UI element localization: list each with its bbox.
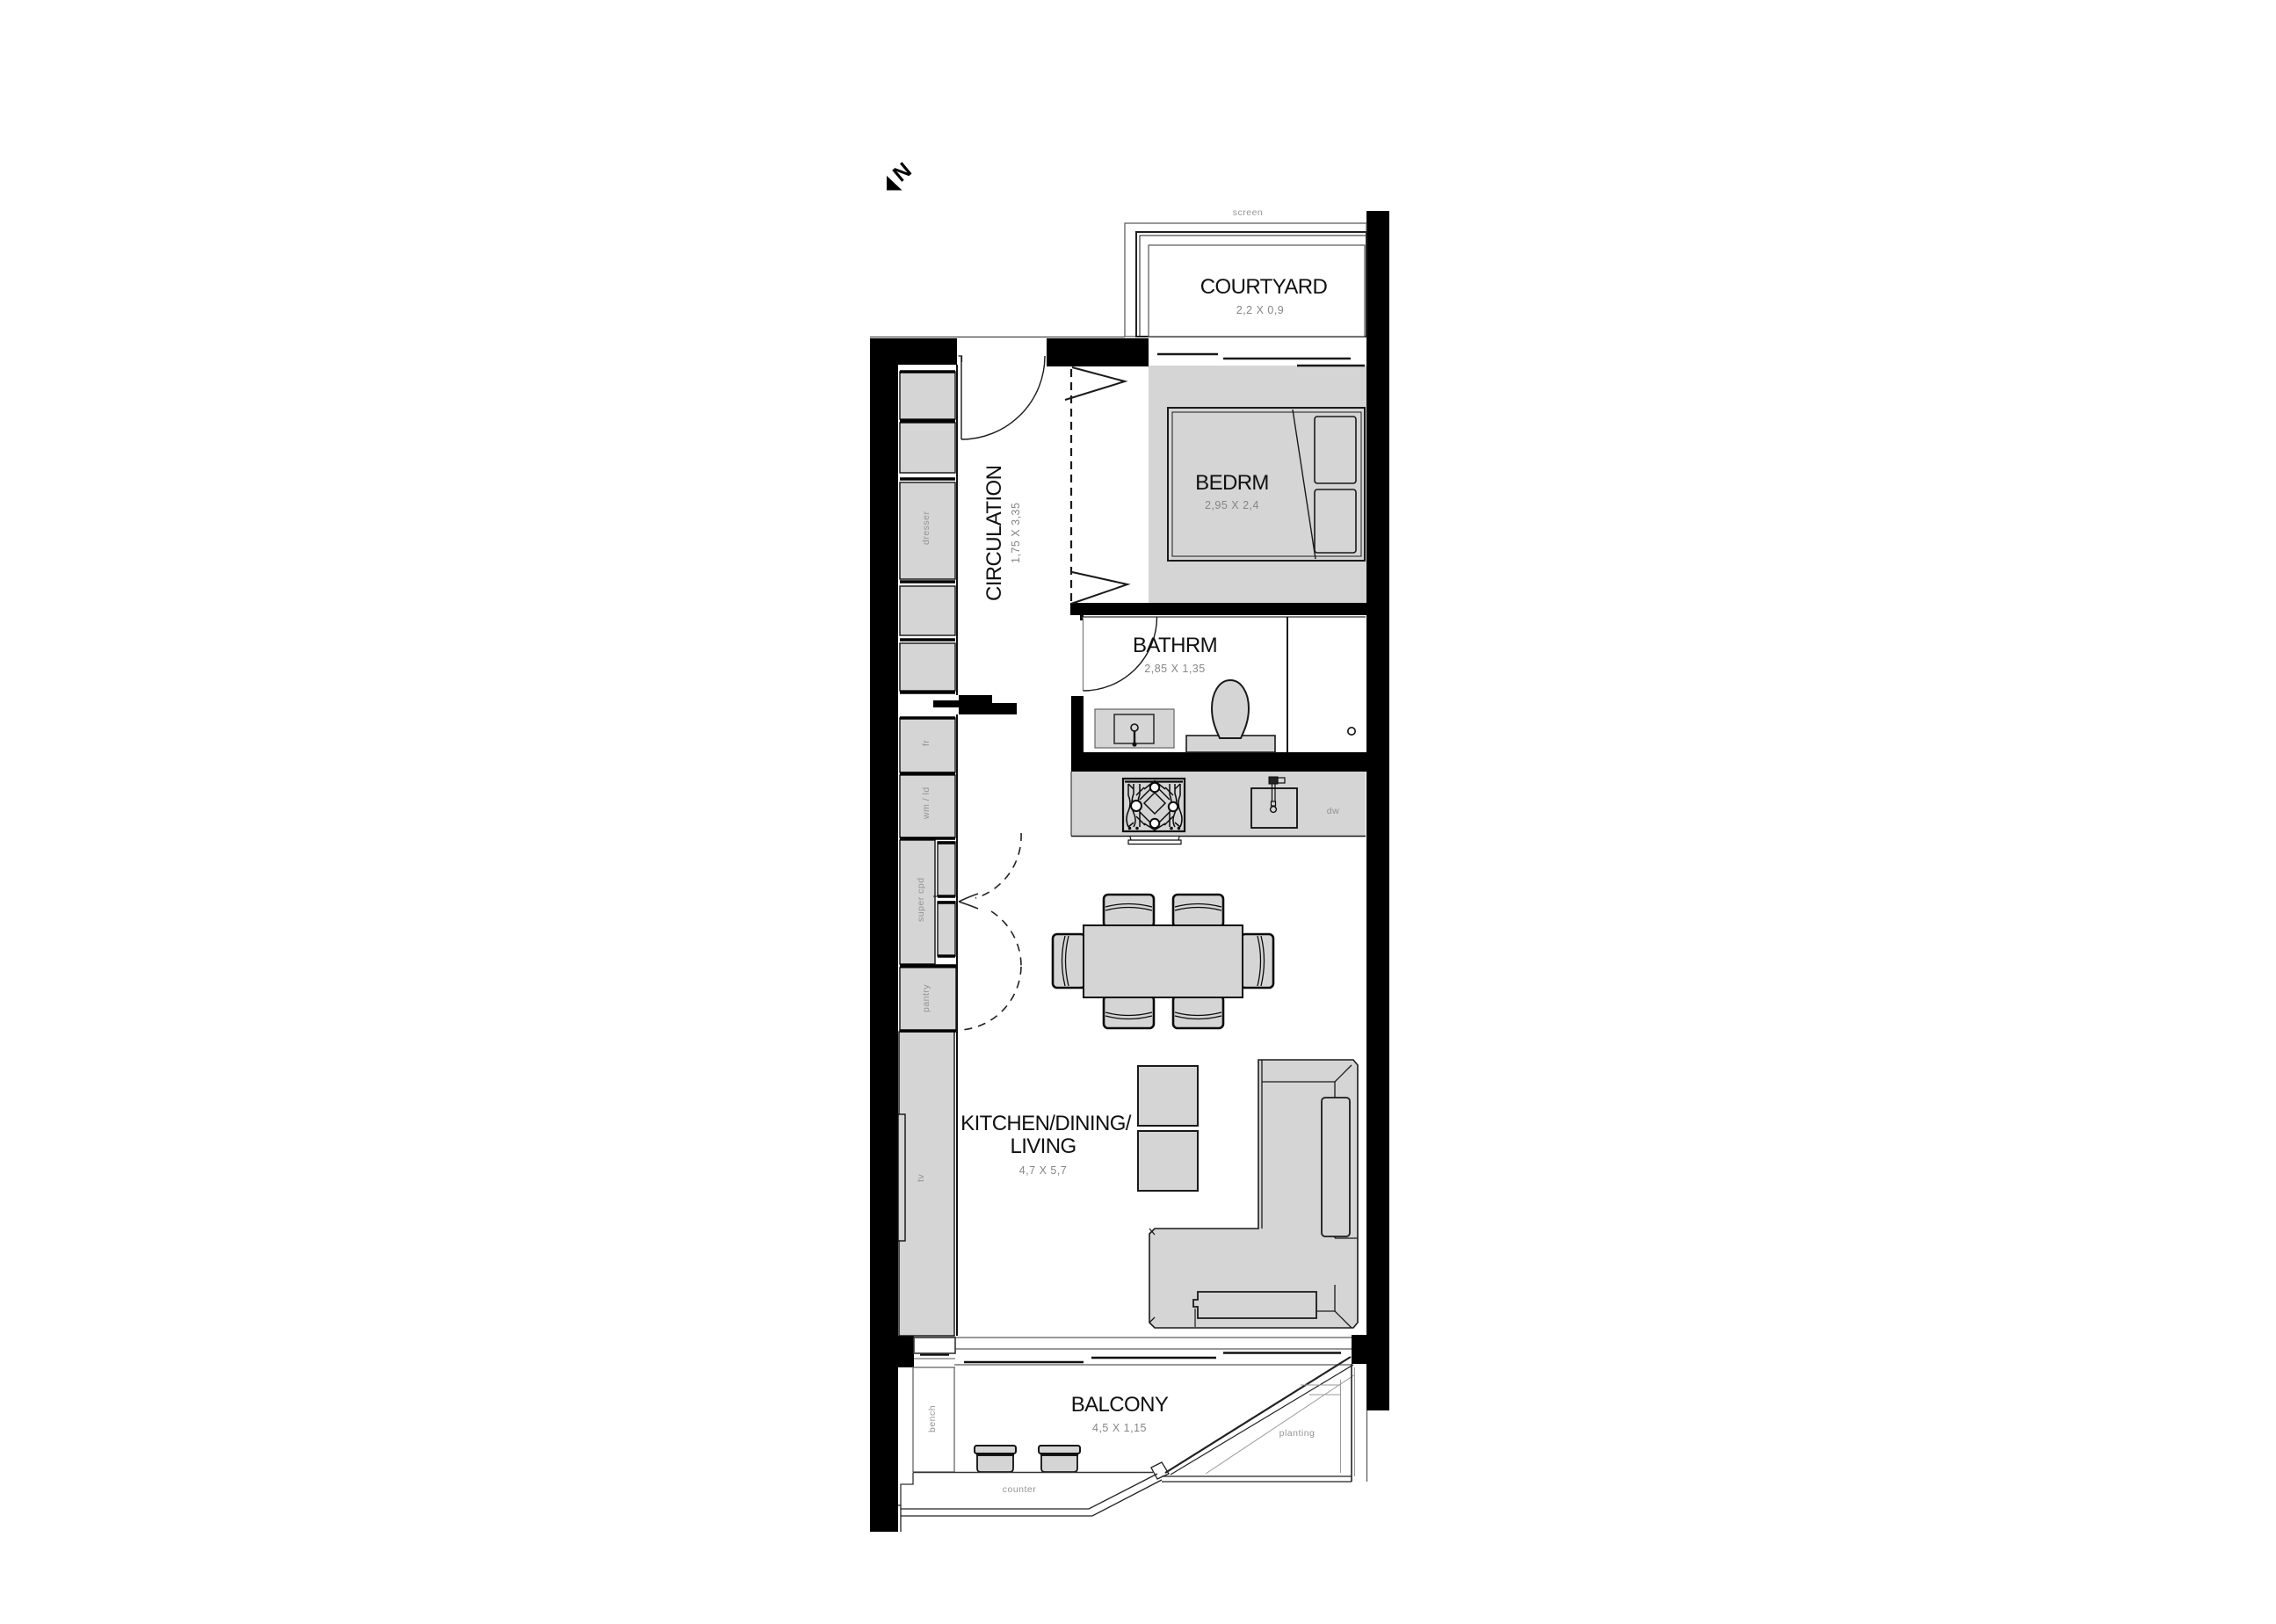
svg-text:COURTYARD: COURTYARD <box>1200 275 1328 299</box>
svg-text:2,95 X 2,4: 2,95 X 2,4 <box>1205 499 1259 511</box>
svg-text:tv: tv <box>916 1174 926 1182</box>
svg-text:BALCONY: BALCONY <box>1071 1393 1169 1417</box>
svg-text:2,2 X 0,9: 2,2 X 0,9 <box>1236 304 1285 316</box>
svg-text:planting: planting <box>1279 1428 1316 1439</box>
svg-text:wm / ld: wm / ld <box>921 787 931 820</box>
svg-text:pantry: pantry <box>921 984 931 1012</box>
svg-text:1,75 X 3,35: 1,75 X 3,35 <box>1010 503 1022 563</box>
svg-text:4,5 X 1,15: 4,5 X 1,15 <box>1092 1422 1147 1434</box>
svg-text:BATHRM: BATHRM <box>1133 634 1217 657</box>
svg-text:fr: fr <box>921 740 931 746</box>
svg-text:dresser: dresser <box>921 511 931 545</box>
svg-text:CIRCULATION: CIRCULATION <box>982 466 1006 601</box>
svg-text:BEDRM: BEDRM <box>1195 471 1269 495</box>
svg-text:screen: screen <box>1233 207 1264 218</box>
svg-text:counter: counter <box>1003 1484 1037 1495</box>
svg-text:bench: bench <box>927 1405 938 1432</box>
svg-text:super cpd: super cpd <box>916 877 926 922</box>
svg-text:dw: dw <box>1327 806 1339 816</box>
svg-text:KITCHEN/DINING/: KITCHEN/DINING/ <box>960 1112 1132 1135</box>
svg-text:2,85 X 1,35: 2,85 X 1,35 <box>1144 663 1205 675</box>
svg-text:LIVING: LIVING <box>1010 1135 1076 1158</box>
svg-text:4,7 X 5,7: 4,7 X 5,7 <box>1019 1164 1068 1177</box>
